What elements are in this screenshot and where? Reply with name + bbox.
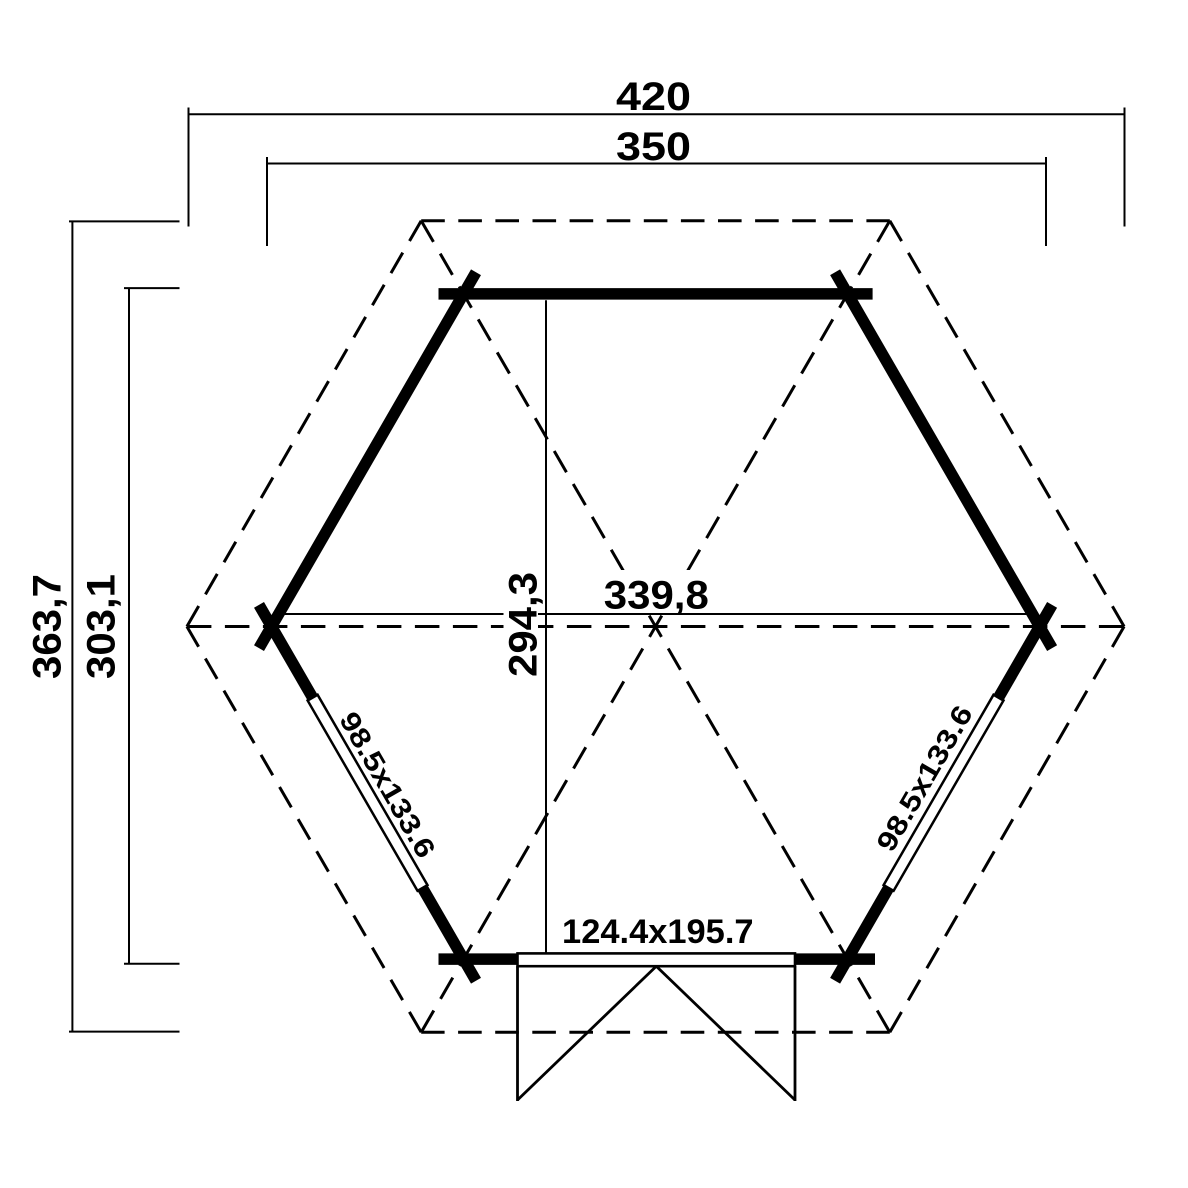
svg-text:350: 350 bbox=[616, 125, 691, 169]
svg-text:303,1: 303,1 bbox=[80, 574, 124, 679]
svg-text:420: 420 bbox=[616, 75, 691, 119]
svg-text:339,8: 339,8 bbox=[604, 574, 709, 618]
svg-text:294,3: 294,3 bbox=[502, 572, 546, 677]
svg-text:124.4x195.7: 124.4x195.7 bbox=[562, 913, 754, 951]
svg-text:363,7: 363,7 bbox=[26, 574, 70, 679]
